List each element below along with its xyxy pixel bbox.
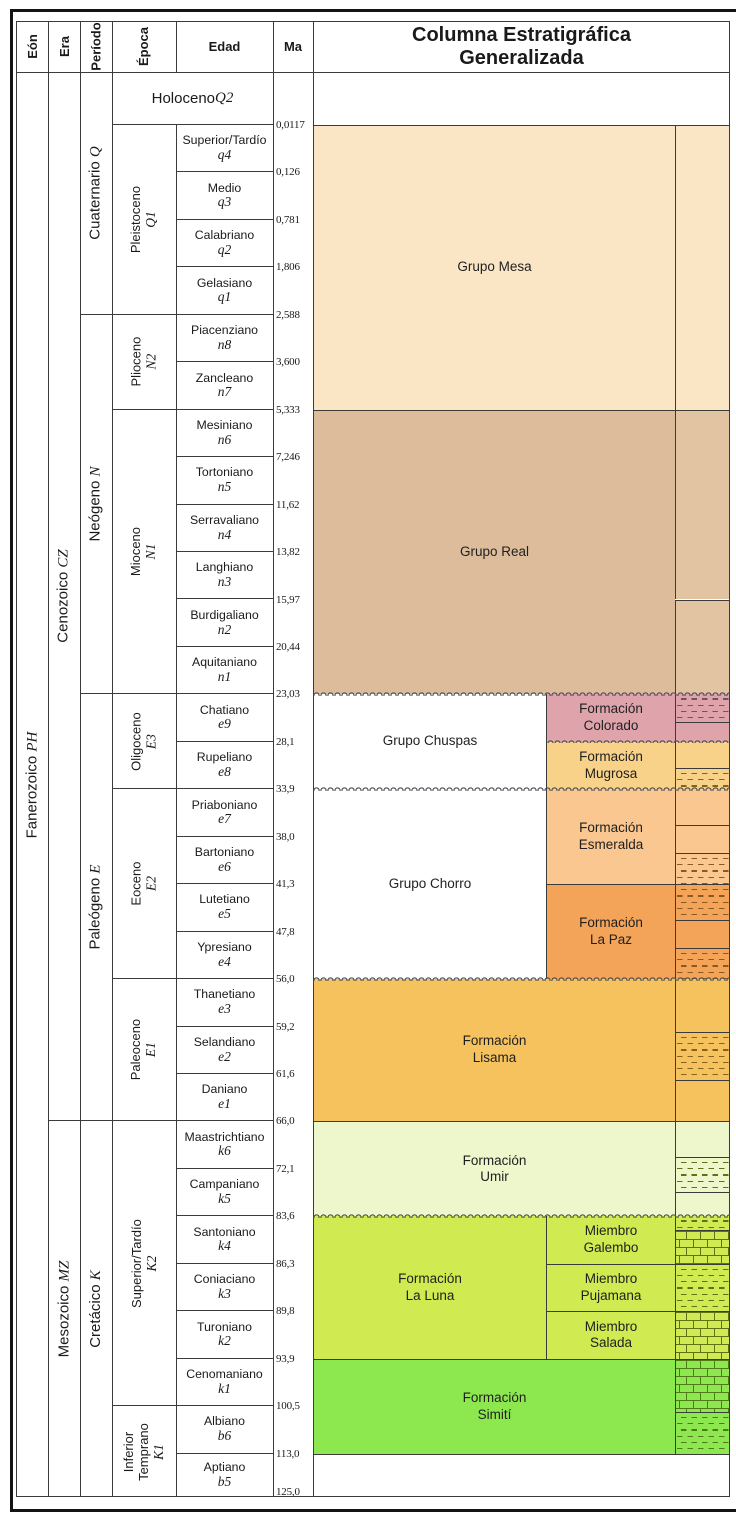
- column-line: [112, 21, 113, 1497]
- table-outline: [16, 21, 730, 1497]
- unconformity-wavy-line: [313, 973, 730, 981]
- unconformity-wavy-line: [313, 688, 730, 696]
- column-line: [313, 21, 314, 1497]
- unconformity-wavy-line: [547, 736, 730, 744]
- stratigraphic-column-chart: Eón Era Período Época Edad Ma Columna Es…: [0, 0, 736, 1513]
- column-line: [273, 21, 274, 1497]
- column-line: [80, 21, 81, 1497]
- unconformity-wavy-line: [313, 783, 730, 791]
- column-line: [48, 21, 49, 1497]
- header-bottom-line: [16, 72, 730, 73]
- column-line-age-body: [176, 125, 177, 1497]
- column-line-age-header: [176, 21, 177, 72]
- unconformity-wavy-line: [313, 1210, 730, 1218]
